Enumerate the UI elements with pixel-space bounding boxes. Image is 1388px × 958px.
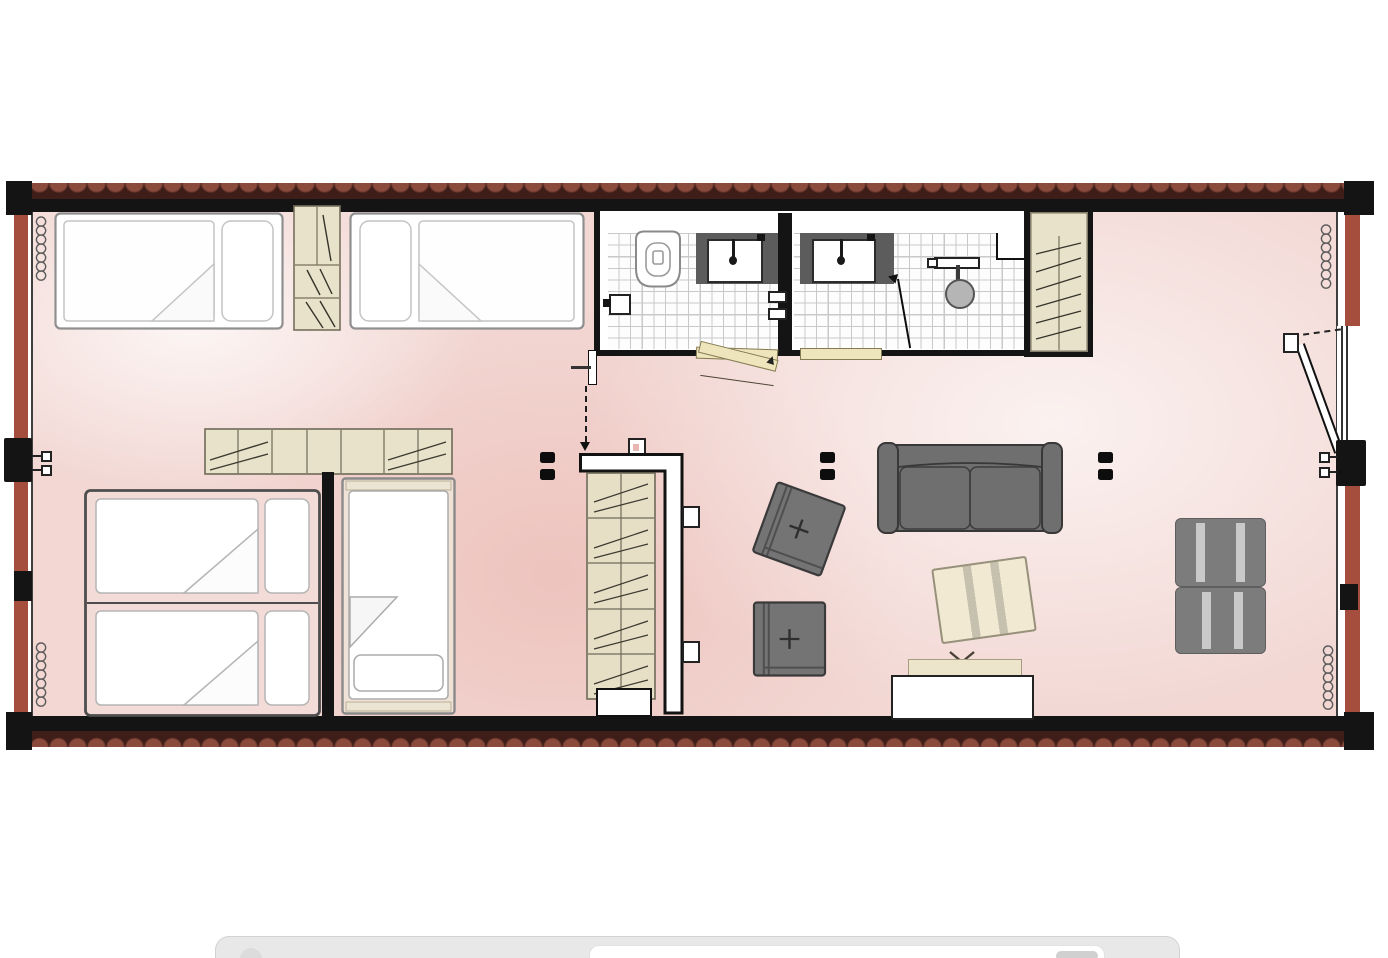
armchair xyxy=(752,600,827,678)
mat-stripe xyxy=(1234,592,1243,649)
coffee-table xyxy=(931,556,1037,645)
mat-stripe xyxy=(1202,592,1211,649)
tab-button[interactable] xyxy=(1056,951,1098,958)
mat-stripe xyxy=(1196,523,1205,582)
sofa xyxy=(876,437,1064,539)
socket-marker xyxy=(540,452,555,463)
socket-marker xyxy=(820,469,835,480)
tab-bar-icon[interactable] xyxy=(240,948,262,958)
armchair xyxy=(750,479,848,578)
mat-stripe xyxy=(1236,523,1245,582)
socket-marker xyxy=(540,469,555,480)
living-room xyxy=(0,0,1388,958)
page xyxy=(0,0,1388,958)
socket-marker xyxy=(1098,452,1113,463)
floor-plan xyxy=(0,0,1388,958)
address-field[interactable] xyxy=(589,945,1105,958)
tv-cabinet xyxy=(891,675,1034,720)
socket-marker xyxy=(820,452,835,463)
floor-mat xyxy=(1175,587,1266,654)
floor-mat xyxy=(1175,518,1266,587)
socket-marker xyxy=(1098,469,1113,480)
